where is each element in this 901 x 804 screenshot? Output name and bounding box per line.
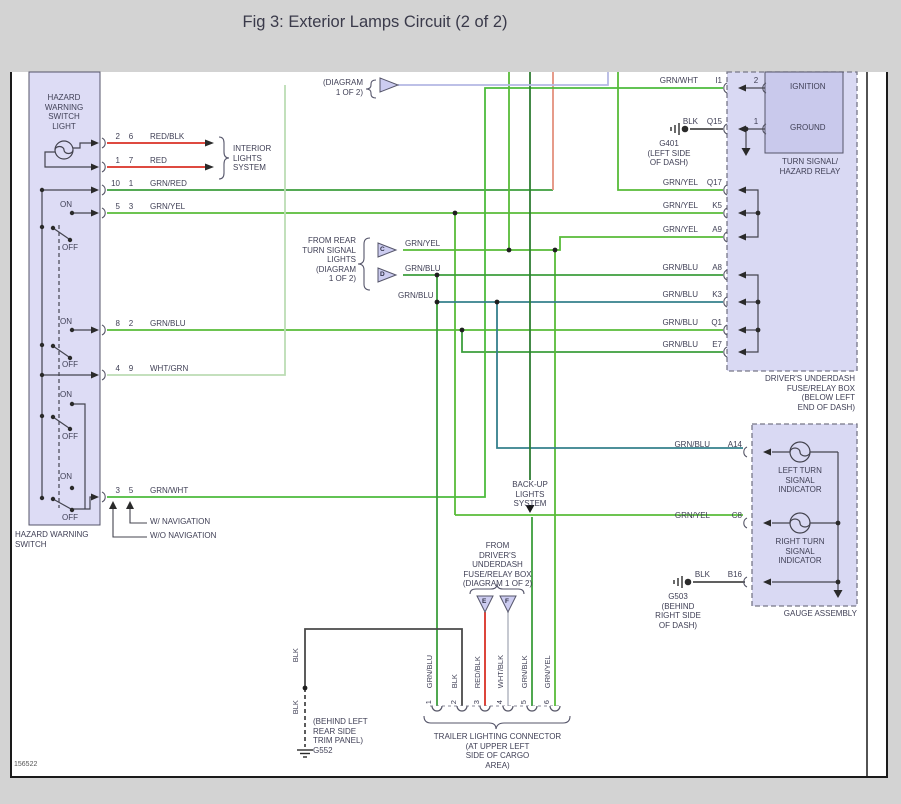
row3-pin1: 10 bbox=[98, 179, 120, 189]
underdash-fuse-relay-box-label: DRIVER'S UNDERDASH FUSE/RELAY BOX (BELOW… bbox=[710, 374, 855, 412]
trailer-wire-4: WHT/BLK bbox=[497, 646, 506, 688]
wire-K5: GRN/YEL bbox=[643, 201, 698, 211]
underdash-source-label: FROM DRIVER'S UNDERDASH FUSE/RELAY BOX (… bbox=[455, 541, 540, 589]
wire-Q17: GRN/YEL bbox=[643, 178, 698, 188]
right-turn-indicator-label: RIGHT TURN SIGNAL INDICATOR bbox=[765, 537, 835, 566]
switch3-on-label: ON bbox=[60, 390, 72, 400]
blk-wire-label-upper: BLK bbox=[292, 636, 301, 662]
connector-f-letter: F bbox=[505, 598, 509, 605]
with-navigation-label: W/ NAVIGATION bbox=[150, 517, 210, 527]
wire-A14: GRN/BLU bbox=[660, 440, 710, 450]
without-navigation-label: W/O NAVIGATION bbox=[150, 531, 216, 541]
left-turn-indicator-label: LEFT TURN SIGNAL INDICATOR bbox=[765, 466, 835, 495]
g401-location: (LEFT SIDE OF DASH) bbox=[640, 149, 698, 168]
g503-id: G503 bbox=[652, 592, 704, 602]
top-ref-label: (DIAGRAM 1 OF 2) bbox=[305, 78, 363, 97]
diagram-id: 156522 bbox=[14, 760, 37, 770]
row3-pin2: 1 bbox=[124, 179, 138, 189]
g552-id: G552 bbox=[313, 746, 333, 756]
pin-C8: C8 bbox=[716, 511, 742, 521]
switch2-off-label: OFF bbox=[62, 360, 78, 370]
hazard-switch-box bbox=[29, 72, 100, 525]
row5-wire: GRN/BLU bbox=[150, 319, 186, 329]
wire-A8: GRN/BLU bbox=[643, 263, 698, 273]
trailer-wire-2: BLK bbox=[451, 646, 460, 688]
row7-wire: GRN/WHT bbox=[150, 486, 188, 496]
hazard-switch-light-label: HAZARD WARNING SWITCH LIGHT bbox=[30, 93, 98, 131]
connector-c-letter: C bbox=[380, 246, 385, 253]
row3-wire: GRN/RED bbox=[150, 179, 187, 189]
row6-pin1: 4 bbox=[98, 364, 120, 374]
trailer-pin-1: 1 bbox=[425, 694, 434, 704]
ignition-label: IGNITION bbox=[790, 82, 826, 92]
blk-wire-label-lower: BLK bbox=[292, 688, 301, 714]
wire-d2-label: GRN/BLU bbox=[398, 291, 434, 301]
row4-pin1: 5 bbox=[98, 202, 120, 212]
trailer-wire-6: GRN/YEL bbox=[544, 646, 553, 688]
trailer-pin-2: 2 bbox=[450, 694, 459, 704]
trailer-connector-label: TRAILER LIGHTING CONNECTOR (AT UPPER LEF… bbox=[420, 732, 575, 770]
trailer-pin-4: 4 bbox=[496, 694, 505, 704]
wiring-diagram-page: Fig 3: Exterior Lamps Circuit (2 of 2) 1… bbox=[0, 0, 901, 804]
relay-pin-1: 1 bbox=[750, 117, 762, 127]
row7-pin1: 3 bbox=[98, 486, 120, 496]
switch2-on-label: ON bbox=[60, 317, 72, 327]
trailer-wire-3: RED/BLK bbox=[474, 646, 483, 688]
wire-B16: BLK bbox=[660, 570, 710, 580]
page-title: Fig 3: Exterior Lamps Circuit (2 of 2) bbox=[0, 12, 750, 32]
wire-c-label: GRN/YEL bbox=[405, 239, 440, 249]
trailer-pin-3: 3 bbox=[473, 694, 482, 704]
row5-pin2: 2 bbox=[124, 319, 138, 329]
switch4-off-label: OFF bbox=[62, 513, 78, 523]
pin-A14: A14 bbox=[716, 440, 742, 450]
trailer-pin-5: 5 bbox=[520, 694, 529, 704]
g401-id: G401 bbox=[645, 139, 693, 149]
underdash-fuse-relay-box bbox=[727, 72, 857, 371]
g503-location: (BEHIND RIGHT SIDE OF DASH) bbox=[647, 602, 709, 631]
wire-A9: GRN/YEL bbox=[643, 225, 698, 235]
g552-location: (BEHIND LEFT REAR SIDE TRIM PANEL) bbox=[313, 717, 368, 746]
switch1-off-label: OFF bbox=[62, 243, 78, 253]
wire-C8: GRN/YEL bbox=[660, 511, 710, 521]
row1-pin2: 6 bbox=[124, 132, 138, 142]
row5-pin1: 8 bbox=[98, 319, 120, 329]
row1-pin1: 2 bbox=[98, 132, 120, 142]
gauge-assembly-label: GAUGE ASSEMBLY bbox=[762, 609, 857, 619]
row1-wire: RED/BLK bbox=[150, 132, 184, 142]
row6-pin2: 9 bbox=[124, 364, 138, 374]
wire-Q15: BLK bbox=[643, 117, 698, 127]
switch1-on-label: ON bbox=[60, 200, 72, 210]
wire-E7: GRN/BLU bbox=[643, 340, 698, 350]
wire-I1: GRN/WHT bbox=[643, 76, 698, 86]
wire-K3: GRN/BLU bbox=[643, 290, 698, 300]
row7-pin2: 5 bbox=[124, 486, 138, 496]
ground-label: GROUND bbox=[790, 123, 826, 133]
turn-signal-hazard-relay-label: TURN SIGNAL/ HAZARD RELAY bbox=[760, 157, 860, 176]
trailer-wire-5: GRN/BLK bbox=[521, 646, 530, 688]
row4-wire: GRN/YEL bbox=[150, 202, 185, 212]
hazard-switch-box-label: HAZARD WARNING SWITCH bbox=[15, 530, 88, 549]
connector-e-letter: E bbox=[482, 598, 486, 605]
relay-pin-2: 2 bbox=[750, 76, 762, 86]
wire-d-label: GRN/BLU bbox=[405, 264, 441, 274]
row4-pin2: 3 bbox=[124, 202, 138, 212]
wire-Q1: GRN/BLU bbox=[643, 318, 698, 328]
trailer-pin-6: 6 bbox=[543, 694, 552, 704]
row2-pin1: 1 bbox=[98, 156, 120, 166]
row2-wire: RED bbox=[150, 156, 167, 166]
switch3-off-label: OFF bbox=[62, 432, 78, 442]
row2-pin2: 7 bbox=[124, 156, 138, 166]
rear-turn-source-label: FROM REAR TURN SIGNAL LIGHTS (DIAGRAM 1 … bbox=[268, 236, 356, 284]
connector-d-letter: D bbox=[380, 271, 385, 278]
pin-B16: B16 bbox=[716, 570, 742, 580]
switch4-on-label: ON bbox=[60, 472, 72, 482]
trailer-wire-1: GRN/BLU bbox=[426, 646, 435, 688]
row6-wire: WHT/GRN bbox=[150, 364, 188, 374]
interior-lights-system-label: INTERIOR LIGHTS SYSTEM bbox=[233, 144, 271, 173]
backup-lights-system-label: BACK-UP LIGHTS SYSTEM bbox=[494, 480, 566, 509]
